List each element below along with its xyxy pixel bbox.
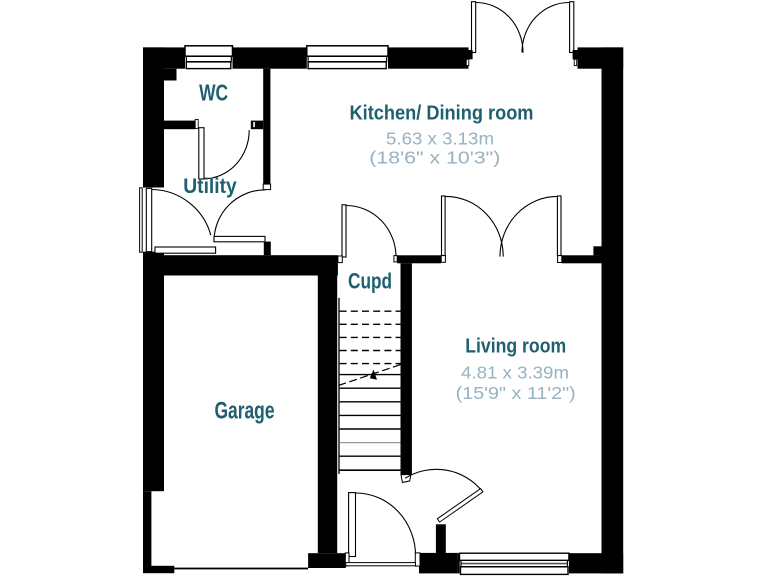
svg-text:Cupd: Cupd bbox=[348, 268, 392, 293]
svg-text:Kitchen/ Dining room: Kitchen/ Dining room bbox=[350, 101, 534, 124]
svg-text:(15'9" x 11'2"): (15'9" x 11'2") bbox=[456, 383, 576, 403]
svg-text:Utility: Utility bbox=[183, 175, 237, 198]
svg-text:4.81 x 3.39m: 4.81 x 3.39m bbox=[461, 363, 569, 383]
svg-text:5.63 x 3.13m: 5.63 x 3.13m bbox=[386, 129, 494, 149]
svg-text:(18'6" x 10'3"): (18'6" x 10'3") bbox=[369, 148, 500, 168]
svg-text:WC: WC bbox=[199, 80, 228, 106]
svg-text:Living room: Living room bbox=[465, 335, 566, 358]
svg-text:Garage: Garage bbox=[215, 398, 275, 425]
